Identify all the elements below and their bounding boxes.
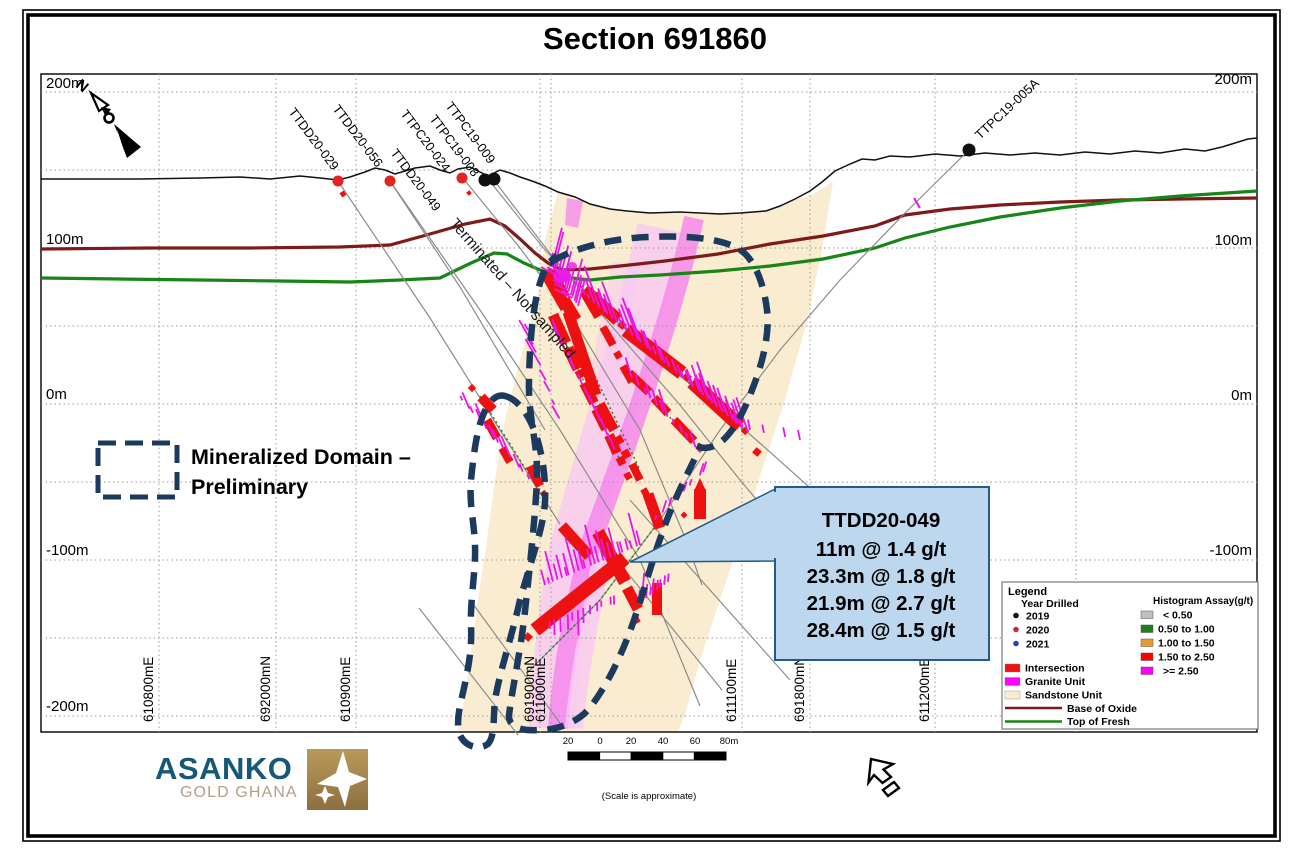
svg-text:21.9m @ 2.7 g/t: 21.9m @ 2.7 g/t (807, 592, 956, 615)
svg-text:>= 2.50: >= 2.50 (1163, 666, 1199, 678)
svg-text:1.50 to 2.50: 1.50 to 2.50 (1158, 652, 1215, 664)
svg-text:Preliminary: Preliminary (191, 475, 308, 499)
svg-text:200m: 200m (1214, 71, 1252, 88)
svg-text:Top of Fresh: Top of Fresh (1067, 716, 1130, 728)
svg-text:ASANKO: ASANKO (155, 751, 292, 786)
svg-text:Sandstone Unit: Sandstone Unit (1025, 690, 1103, 702)
svg-text:TTDD20-049: TTDD20-049 (822, 509, 941, 532)
svg-text:611100mE: 611100mE (724, 659, 739, 722)
svg-text:691800mN: 691800mN (792, 656, 807, 722)
svg-text:610900mE: 610900mE (338, 657, 353, 722)
svg-text:100m: 100m (1214, 232, 1252, 249)
svg-text:0m: 0m (1231, 387, 1252, 404)
svg-text:23.3m @ 1.8 g/t: 23.3m @ 1.8 g/t (807, 565, 956, 588)
svg-text:611200mE: 611200mE (917, 658, 932, 722)
svg-text:28.4m @ 1.5 g/t: 28.4m @ 1.5 g/t (807, 619, 956, 642)
svg-text:2021: 2021 (1026, 639, 1050, 651)
svg-text:Mineralized Domain –: Mineralized Domain – (191, 445, 411, 469)
svg-text:611000mE: 611000mE (533, 658, 548, 722)
svg-text:80m: 80m (720, 736, 739, 747)
svg-text:20: 20 (563, 736, 574, 747)
svg-text:60: 60 (690, 736, 701, 747)
svg-text:Section 691860: Section 691860 (543, 21, 767, 56)
svg-text:40: 40 (658, 736, 669, 747)
svg-text:Granite Unit: Granite Unit (1025, 676, 1086, 688)
svg-text:-200m: -200m (46, 698, 89, 715)
svg-text:< 0.50: < 0.50 (1163, 610, 1193, 622)
svg-text:-100m: -100m (1209, 542, 1252, 559)
svg-text:Histogram Assay(g/t): Histogram Assay(g/t) (1153, 596, 1253, 607)
svg-text:Intersection: Intersection (1025, 663, 1085, 675)
svg-text:GOLD GHANA: GOLD GHANA (180, 784, 298, 801)
svg-text:11m @ 1.4 g/t: 11m @ 1.4 g/t (816, 538, 947, 561)
svg-text:-100m: -100m (46, 542, 89, 559)
svg-text:100m: 100m (46, 231, 84, 248)
svg-text:0.50 to 1.00: 0.50 to 1.00 (1158, 624, 1215, 636)
svg-text:Legend: Legend (1008, 586, 1047, 598)
svg-text:(Scale is approximate): (Scale is approximate) (602, 791, 697, 802)
svg-text:2020: 2020 (1026, 625, 1050, 637)
svg-text:2019: 2019 (1026, 611, 1050, 623)
svg-text:0m: 0m (46, 386, 67, 403)
svg-text:1.00 to 1.50: 1.00 to 1.50 (1158, 638, 1215, 650)
svg-text:Year Drilled: Year Drilled (1021, 598, 1079, 610)
svg-text:0: 0 (597, 736, 602, 747)
svg-text:20: 20 (626, 736, 637, 747)
svg-text:Base of Oxide: Base of Oxide (1067, 703, 1137, 715)
svg-text:692000mN: 692000mN (258, 656, 273, 722)
svg-text:610800mE: 610800mE (141, 657, 156, 722)
